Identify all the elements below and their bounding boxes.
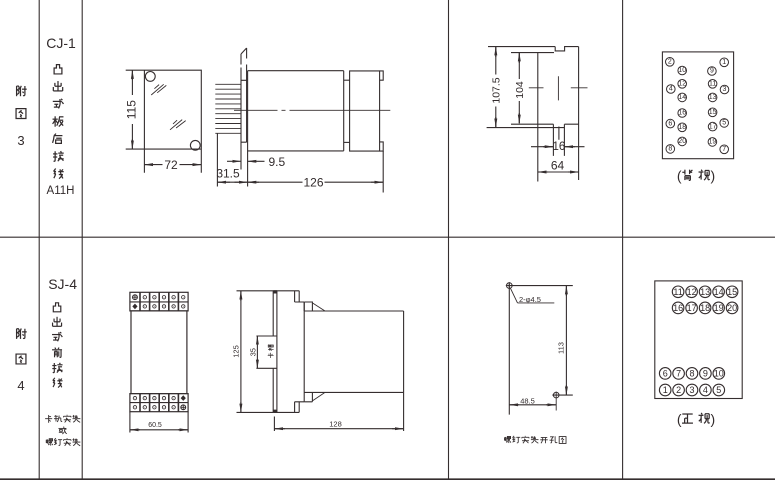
svg-text:9: 9 <box>703 369 708 379</box>
svg-text:18: 18 <box>678 124 686 131</box>
svg-text:19: 19 <box>709 139 717 146</box>
svg-text:2: 2 <box>668 59 672 66</box>
svg-text:2-φ4.5: 2-φ4.5 <box>519 295 541 304</box>
svg-text:17: 17 <box>709 123 717 130</box>
svg-text:11: 11 <box>709 81 716 88</box>
svg-text:4: 4 <box>669 86 673 93</box>
svg-text:16: 16 <box>553 141 566 153</box>
svg-text:64: 64 <box>551 159 565 173</box>
svg-text:3: 3 <box>17 133 24 148</box>
svg-text:104: 104 <box>514 81 526 99</box>
svg-text:2: 2 <box>676 385 681 395</box>
svg-text:13: 13 <box>709 94 717 101</box>
svg-text:6: 6 <box>668 120 672 127</box>
svg-text:(: ( <box>677 411 682 427</box>
svg-text:35: 35 <box>248 348 257 356</box>
svg-text:CJ-1: CJ-1 <box>46 35 76 51</box>
svg-text:(: ( <box>677 168 682 184</box>
svg-text:20: 20 <box>727 303 737 313</box>
svg-text:14: 14 <box>714 287 724 297</box>
svg-text:126: 126 <box>303 175 323 189</box>
svg-text:A11H: A11H <box>47 185 75 197</box>
svg-text:10: 10 <box>678 67 686 74</box>
svg-text:9.5: 9.5 <box>269 155 286 169</box>
svg-text:115: 115 <box>125 100 139 119</box>
svg-text:5: 5 <box>716 385 721 395</box>
svg-text:20: 20 <box>678 138 686 145</box>
svg-text:7: 7 <box>722 146 726 153</box>
svg-text:125: 125 <box>231 345 240 358</box>
svg-text:6: 6 <box>663 369 668 379</box>
svg-text:128: 128 <box>329 420 342 429</box>
svg-text:SJ-4: SJ-4 <box>48 276 77 292</box>
svg-text:12: 12 <box>687 287 697 297</box>
svg-text:10: 10 <box>714 369 724 379</box>
svg-text:3: 3 <box>723 86 727 93</box>
svg-text:16: 16 <box>673 303 683 313</box>
svg-text:18: 18 <box>700 303 710 313</box>
svg-text:8: 8 <box>689 369 694 379</box>
svg-text:13: 13 <box>700 287 710 297</box>
svg-text:15: 15 <box>727 287 737 297</box>
svg-text:19: 19 <box>714 303 724 313</box>
svg-text:14: 14 <box>678 94 686 101</box>
svg-text:4: 4 <box>703 385 708 395</box>
svg-text:17: 17 <box>687 303 697 313</box>
svg-text:72: 72 <box>164 158 178 172</box>
svg-text:8: 8 <box>668 146 672 153</box>
svg-text:15: 15 <box>709 109 717 116</box>
svg-text:9: 9 <box>710 68 714 75</box>
svg-text:1: 1 <box>663 385 668 395</box>
svg-text:12: 12 <box>678 81 686 88</box>
svg-text:): ) <box>710 411 715 427</box>
svg-text:1: 1 <box>722 59 726 66</box>
svg-text:16: 16 <box>678 110 686 117</box>
svg-text:107.5: 107.5 <box>491 77 503 103</box>
svg-text:): ) <box>710 168 715 184</box>
svg-text:60.5: 60.5 <box>148 422 162 429</box>
svg-text:4: 4 <box>17 378 24 393</box>
svg-text:3: 3 <box>689 385 694 395</box>
svg-text:7: 7 <box>676 369 681 379</box>
svg-text:5: 5 <box>722 120 726 127</box>
svg-text:31.5: 31.5 <box>216 166 240 180</box>
svg-text:11: 11 <box>673 287 682 297</box>
svg-text:113: 113 <box>557 342 566 354</box>
svg-text:48.5: 48.5 <box>520 397 535 406</box>
